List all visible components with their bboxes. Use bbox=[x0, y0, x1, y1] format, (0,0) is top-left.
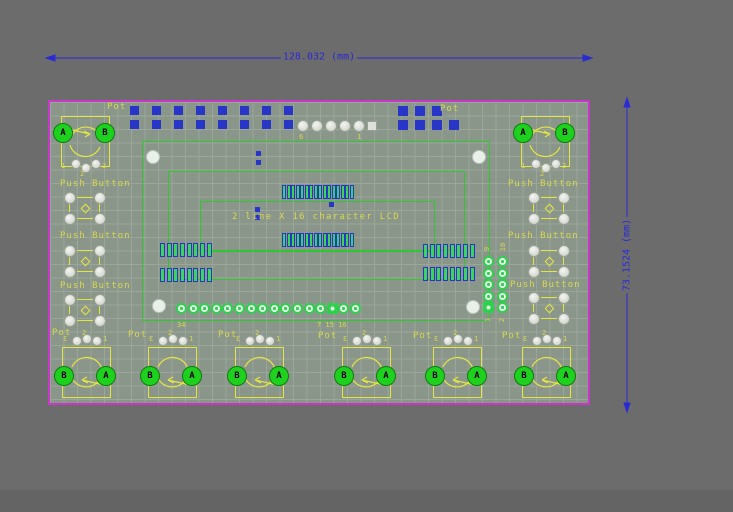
button-pad[interactable] bbox=[94, 245, 106, 257]
pad[interactable] bbox=[470, 267, 475, 281]
silk-line bbox=[69, 306, 70, 314]
pot-pin[interactable] bbox=[158, 336, 168, 346]
silk-line bbox=[541, 297, 557, 298]
pin-number: 2 bbox=[82, 329, 86, 337]
button-pad[interactable] bbox=[94, 192, 106, 204]
silk-line bbox=[77, 299, 93, 300]
via[interactable] bbox=[256, 151, 261, 156]
button-pad[interactable] bbox=[528, 313, 540, 325]
header-pin[interactable] bbox=[211, 303, 222, 314]
push-button-label: Push Button bbox=[508, 179, 579, 189]
button-pad[interactable] bbox=[94, 294, 106, 306]
pot-pad-b[interactable]: B bbox=[227, 366, 247, 386]
mounting-hole[interactable] bbox=[146, 150, 160, 164]
header-pin[interactable] bbox=[280, 303, 291, 314]
header-pin[interactable] bbox=[222, 303, 233, 314]
push-button-label: Push Button bbox=[60, 179, 131, 189]
header-pin[interactable] bbox=[350, 303, 361, 314]
via[interactable] bbox=[329, 202, 334, 207]
pad[interactable] bbox=[207, 268, 212, 282]
smd-pad[interactable] bbox=[152, 120, 161, 129]
pot-label: Pot bbox=[52, 328, 71, 338]
pin-number: 3 bbox=[149, 335, 153, 343]
lcd-pad[interactable] bbox=[287, 233, 291, 247]
pot-pad-b[interactable]: B bbox=[54, 366, 74, 386]
button-pad[interactable] bbox=[64, 192, 76, 204]
lcd-pad[interactable] bbox=[305, 185, 309, 199]
button-pad[interactable] bbox=[94, 213, 106, 225]
pot-pad-a[interactable]: A bbox=[53, 123, 73, 143]
pot-component[interactable]: B A 3 2 1 bbox=[148, 347, 197, 398]
pin-number: 1 bbox=[61, 162, 65, 170]
pot-pin[interactable] bbox=[265, 336, 275, 346]
header-pin[interactable] bbox=[497, 279, 508, 290]
pad-group-left-row1[interactable] bbox=[160, 243, 212, 257]
pot-component[interactable]: B A 3 2 1 bbox=[342, 347, 391, 398]
lcd-pad[interactable] bbox=[282, 233, 286, 247]
lcd-pad[interactable] bbox=[296, 233, 300, 247]
dim-horizontal: 128.032 (mm) bbox=[44, 50, 594, 64]
lcd-pad[interactable] bbox=[300, 185, 304, 199]
pad[interactable] bbox=[423, 244, 428, 258]
smd-pad[interactable] bbox=[218, 120, 227, 129]
pad[interactable] bbox=[200, 243, 205, 257]
pot-pin[interactable] bbox=[178, 336, 188, 346]
push-button-component[interactable] bbox=[64, 245, 106, 276]
pot-pin[interactable] bbox=[552, 336, 562, 346]
smd-pad[interactable] bbox=[415, 106, 425, 116]
mounting-hole[interactable] bbox=[466, 300, 480, 314]
silk-line bbox=[77, 218, 93, 219]
button-pad[interactable] bbox=[94, 266, 106, 278]
silk-line bbox=[99, 306, 100, 314]
lcd-pad[interactable] bbox=[341, 185, 345, 199]
smd-pad[interactable] bbox=[284, 106, 293, 115]
lcd-pad[interactable] bbox=[332, 185, 336, 199]
pot-pin[interactable] bbox=[72, 336, 82, 346]
lcd-pad[interactable] bbox=[309, 233, 313, 247]
pin-number: 2 bbox=[498, 318, 506, 322]
lcd-pad[interactable] bbox=[314, 233, 318, 247]
lcd-pad[interactable] bbox=[327, 233, 331, 247]
lcd-pad[interactable] bbox=[318, 233, 322, 247]
pad-letter: A bbox=[189, 371, 194, 381]
silk-line bbox=[541, 271, 557, 272]
pot-label: Pot bbox=[440, 104, 459, 114]
pin-number: 2 bbox=[453, 329, 457, 337]
pin-number: 3 bbox=[562, 162, 566, 170]
pad[interactable] bbox=[187, 243, 192, 257]
header-pin[interactable] bbox=[339, 120, 351, 132]
trace-bus-line bbox=[168, 250, 463, 251]
header-pin[interactable] bbox=[176, 303, 187, 314]
header-pin[interactable] bbox=[497, 302, 508, 313]
pin-number: 2 bbox=[542, 329, 546, 337]
silk-line bbox=[77, 197, 93, 198]
pin-number: 2 bbox=[80, 170, 84, 178]
pot-label: Pot bbox=[502, 331, 521, 341]
lcd-pad[interactable] bbox=[291, 233, 295, 247]
lcd-pad[interactable] bbox=[336, 233, 340, 247]
header-pin[interactable] bbox=[483, 256, 494, 267]
pin-number: 3 bbox=[343, 335, 347, 343]
lcd-pad[interactable] bbox=[336, 185, 340, 199]
pad[interactable] bbox=[463, 267, 468, 281]
pad-letter: A bbox=[474, 371, 479, 381]
smd-pad[interactable] bbox=[174, 106, 183, 115]
pin-number: 34 bbox=[177, 321, 185, 329]
smd-pad[interactable] bbox=[240, 120, 249, 129]
button-pad[interactable] bbox=[528, 192, 540, 204]
silk-line bbox=[99, 204, 100, 212]
smd-pad[interactable] bbox=[130, 106, 139, 115]
pad-letter: A bbox=[276, 371, 281, 381]
smd-pad[interactable] bbox=[449, 120, 459, 130]
smd-pad[interactable] bbox=[240, 106, 249, 115]
header-pin-square[interactable] bbox=[327, 303, 338, 314]
smd-pad[interactable] bbox=[130, 120, 139, 129]
silk-line bbox=[77, 271, 93, 272]
mounting-hole[interactable] bbox=[472, 150, 486, 164]
mounting-hole[interactable] bbox=[152, 299, 166, 313]
pot-pad-a[interactable]: A bbox=[182, 366, 202, 386]
pad[interactable] bbox=[207, 243, 212, 257]
lcd-pad[interactable] bbox=[282, 185, 286, 199]
lcd-pad[interactable] bbox=[287, 185, 291, 199]
pin-number: 9 bbox=[483, 247, 491, 251]
dim-horizontal-label: 128.032 (mm) bbox=[281, 52, 357, 63]
header-pin[interactable] bbox=[199, 303, 210, 314]
header-pin[interactable] bbox=[311, 120, 323, 132]
lcd-pad-row-top[interactable] bbox=[282, 185, 354, 199]
silk-line bbox=[541, 197, 557, 198]
pot-label: Pot bbox=[128, 330, 147, 340]
push-button-component[interactable] bbox=[528, 292, 570, 323]
pad-group-right-row2[interactable] bbox=[423, 267, 475, 281]
button-pad[interactable] bbox=[528, 213, 540, 225]
pin-number: 1 bbox=[521, 162, 525, 170]
pot-pin[interactable] bbox=[443, 336, 453, 346]
pad[interactable] bbox=[430, 267, 435, 281]
smd-pad-group-left[interactable] bbox=[130, 106, 293, 129]
header-pin[interactable] bbox=[353, 120, 365, 132]
pad[interactable] bbox=[436, 244, 441, 258]
pot-pad-a[interactable]: A bbox=[376, 366, 396, 386]
pot-pin[interactable] bbox=[372, 336, 382, 346]
push-button-component[interactable] bbox=[64, 192, 106, 223]
pad[interactable] bbox=[456, 244, 461, 258]
push-button-component[interactable] bbox=[64, 294, 106, 325]
pot-component[interactable]: B A 3 2 1 bbox=[433, 347, 482, 398]
pad[interactable] bbox=[470, 244, 475, 258]
pad[interactable] bbox=[180, 268, 185, 282]
pad[interactable] bbox=[443, 244, 448, 258]
pin-number: 1 bbox=[276, 335, 280, 343]
header-pin-1-square[interactable] bbox=[483, 302, 494, 313]
header-pin[interactable] bbox=[257, 303, 268, 314]
pad-letter: A bbox=[520, 128, 525, 138]
silk-line bbox=[563, 204, 564, 212]
header-pin[interactable] bbox=[483, 291, 494, 302]
smd-pad-pair[interactable] bbox=[130, 106, 139, 129]
pot-pin[interactable] bbox=[71, 159, 81, 169]
pad[interactable] bbox=[450, 244, 455, 258]
button-pad[interactable] bbox=[558, 266, 570, 278]
header-pin[interactable] bbox=[297, 120, 309, 132]
push-button-component[interactable] bbox=[528, 245, 570, 276]
silk-line bbox=[77, 320, 93, 321]
pot-label: Pot bbox=[218, 330, 237, 340]
button-pad[interactable] bbox=[558, 213, 570, 225]
pad[interactable] bbox=[180, 243, 185, 257]
header-pin[interactable] bbox=[315, 303, 326, 314]
pad[interactable] bbox=[423, 267, 428, 281]
pot-pin[interactable] bbox=[91, 159, 101, 169]
pin-number: 2 bbox=[255, 329, 259, 337]
pot-pad-b[interactable]: B bbox=[334, 366, 354, 386]
pot-label: Pot bbox=[318, 331, 337, 341]
pot-pad-b[interactable]: B bbox=[95, 123, 115, 143]
header-pin[interactable] bbox=[483, 268, 494, 279]
pot-pin[interactable] bbox=[245, 336, 255, 346]
smd-pad[interactable] bbox=[218, 106, 227, 115]
pin-header-16[interactable] bbox=[176, 303, 361, 314]
pot-pin[interactable] bbox=[551, 159, 561, 169]
smd-pad[interactable] bbox=[284, 120, 293, 129]
button-pad[interactable] bbox=[64, 315, 76, 327]
lcd-pad[interactable] bbox=[305, 233, 309, 247]
pad-letter: A bbox=[383, 371, 388, 381]
pad[interactable] bbox=[193, 268, 198, 282]
push-button-label: Push Button bbox=[508, 231, 579, 241]
pad-letter: B bbox=[432, 371, 437, 381]
smd-pad[interactable] bbox=[174, 120, 183, 129]
silk-diamond bbox=[545, 204, 555, 214]
lcd-pad[interactable] bbox=[341, 233, 345, 247]
button-pad[interactable] bbox=[558, 192, 570, 204]
lcd-pad-row-bottom[interactable] bbox=[282, 233, 354, 247]
pad[interactable] bbox=[193, 243, 198, 257]
pad-letter: B bbox=[102, 128, 107, 138]
lcd-pad[interactable] bbox=[291, 185, 295, 199]
pad[interactable] bbox=[200, 268, 205, 282]
pot-pad-a[interactable]: A bbox=[556, 366, 576, 386]
button-pad[interactable] bbox=[64, 266, 76, 278]
pad[interactable] bbox=[167, 268, 172, 282]
pin-number: 3 bbox=[434, 335, 438, 343]
pot-component[interactable]: B A 3 2 1 bbox=[522, 347, 571, 398]
silk-line bbox=[541, 318, 557, 319]
pot-pad-a[interactable]: A bbox=[467, 366, 487, 386]
silk-diamond bbox=[545, 257, 555, 267]
pad-group-left-row2[interactable] bbox=[160, 268, 212, 282]
pin-number: 1 bbox=[474, 335, 478, 343]
button-pad[interactable] bbox=[528, 245, 540, 257]
header-pin[interactable] bbox=[497, 256, 508, 267]
button-pad[interactable] bbox=[558, 292, 570, 304]
smd-pad-pair[interactable] bbox=[284, 106, 293, 129]
pad[interactable] bbox=[173, 268, 178, 282]
smd-pad[interactable] bbox=[152, 106, 161, 115]
button-pad[interactable] bbox=[558, 313, 570, 325]
pin-number: 1 bbox=[563, 335, 567, 343]
pot-pad-a[interactable]: A bbox=[96, 366, 116, 386]
pad[interactable] bbox=[430, 244, 435, 258]
pad-letter: A bbox=[60, 128, 65, 138]
lcd-pad[interactable] bbox=[345, 185, 349, 199]
pad-letter: B bbox=[521, 371, 526, 381]
lcd-silkscreen-text: 2 line X 16 character LCD bbox=[232, 212, 400, 222]
pin-number: 1 bbox=[357, 133, 361, 141]
header-pin[interactable] bbox=[292, 303, 303, 314]
pin-number: 2 bbox=[540, 170, 544, 178]
smd-pad[interactable] bbox=[196, 120, 205, 129]
smd-pad-pair[interactable] bbox=[218, 106, 227, 129]
lcd-pad[interactable] bbox=[350, 233, 354, 247]
button-pad[interactable] bbox=[94, 315, 106, 327]
silk-line bbox=[99, 257, 100, 265]
pot-component[interactable]: A B 1 2 3 bbox=[521, 116, 570, 167]
pad[interactable] bbox=[450, 267, 455, 281]
pad-letter: B bbox=[562, 128, 567, 138]
silk-line bbox=[563, 257, 564, 265]
pcb-editor-canvas[interactable]: 128.032 (mm) 73.1524 (mm) bbox=[0, 0, 733, 512]
silk-diamond bbox=[81, 204, 91, 214]
smd-pad[interactable] bbox=[398, 106, 408, 116]
header-pin[interactable] bbox=[497, 291, 508, 302]
header-pin[interactable] bbox=[483, 279, 494, 290]
pad[interactable] bbox=[167, 243, 172, 257]
pad-letter: B bbox=[234, 371, 239, 381]
header-pin[interactable] bbox=[325, 120, 337, 132]
lcd-pad[interactable] bbox=[314, 185, 318, 199]
silk-line bbox=[563, 304, 564, 312]
pad[interactable] bbox=[456, 267, 461, 281]
pot-pin[interactable] bbox=[92, 336, 102, 346]
silk-line bbox=[77, 250, 93, 251]
pin-number: 2 bbox=[168, 329, 172, 337]
header-pin[interactable] bbox=[269, 303, 280, 314]
dim-vertical: 73.1524 (mm) bbox=[620, 96, 634, 414]
pad[interactable] bbox=[436, 267, 441, 281]
smd-pad-pair[interactable] bbox=[196, 106, 205, 129]
silk-line bbox=[541, 218, 557, 219]
pot-pad-b[interactable]: B bbox=[555, 123, 575, 143]
lcd-pad[interactable] bbox=[309, 185, 313, 199]
pot-component[interactable]: A B 1 2 3 bbox=[61, 116, 110, 167]
pot-component[interactable]: B A 3 2 1 bbox=[62, 347, 111, 398]
pad[interactable] bbox=[160, 268, 165, 282]
header-pin[interactable] bbox=[304, 303, 315, 314]
pot-pad-b[interactable]: B bbox=[140, 366, 160, 386]
header-pin[interactable] bbox=[234, 303, 245, 314]
silk-line bbox=[533, 204, 534, 212]
pot-label: Pot bbox=[413, 331, 432, 341]
lcd-pad[interactable] bbox=[345, 233, 349, 247]
header-pin[interactable] bbox=[246, 303, 257, 314]
pad[interactable] bbox=[187, 268, 192, 282]
smd-pad[interactable] bbox=[262, 120, 271, 129]
silk-line bbox=[533, 304, 534, 312]
push-button-label: Push Button bbox=[510, 280, 581, 290]
pot-pad-a[interactable]: A bbox=[513, 123, 533, 143]
silk-diamond bbox=[81, 306, 91, 316]
pin-header-2x5[interactable] bbox=[483, 256, 508, 313]
smd-pad-pair[interactable] bbox=[398, 106, 408, 130]
pad-letter: B bbox=[147, 371, 152, 381]
button-pad[interactable] bbox=[558, 245, 570, 257]
lcd-pad[interactable] bbox=[323, 185, 327, 199]
pot-pin[interactable] bbox=[463, 336, 473, 346]
lcd-pad[interactable] bbox=[332, 233, 336, 247]
header-pin[interactable] bbox=[497, 268, 508, 279]
silk-line bbox=[533, 257, 534, 265]
button-pad[interactable] bbox=[64, 294, 76, 306]
smd-pad-pair[interactable] bbox=[152, 106, 161, 129]
silk-line bbox=[541, 250, 557, 251]
smd-pad-pair[interactable] bbox=[174, 106, 183, 129]
pad-letter: B bbox=[341, 371, 346, 381]
lcd-pad[interactable] bbox=[327, 185, 331, 199]
button-pad[interactable] bbox=[64, 213, 76, 225]
via[interactable] bbox=[256, 160, 261, 165]
pin-number: 1 bbox=[383, 335, 387, 343]
button-pad[interactable] bbox=[528, 292, 540, 304]
button-pad[interactable] bbox=[64, 245, 76, 257]
smd-pad[interactable] bbox=[432, 120, 442, 130]
window-bottom-strip bbox=[0, 490, 733, 512]
pad-letter: A bbox=[563, 371, 568, 381]
pot-pad-b[interactable]: B bbox=[425, 366, 445, 386]
pad[interactable] bbox=[443, 267, 448, 281]
lcd-pad[interactable] bbox=[318, 185, 322, 199]
smd-pad[interactable] bbox=[415, 120, 425, 130]
pot-component[interactable]: B A 3 2 1 bbox=[235, 347, 284, 398]
smd-pad[interactable] bbox=[262, 106, 271, 115]
push-button-component[interactable] bbox=[528, 192, 570, 223]
smd-pad-pair[interactable] bbox=[262, 106, 271, 129]
pin-number: 1 bbox=[484, 318, 492, 322]
smd-pad[interactable] bbox=[398, 120, 408, 130]
pot-pad-b[interactable]: B bbox=[514, 366, 534, 386]
push-button-label: Push Button bbox=[60, 281, 131, 291]
pot-pin[interactable] bbox=[532, 336, 542, 346]
lcd-pad[interactable] bbox=[350, 185, 354, 199]
pot-label: Pot bbox=[107, 102, 126, 112]
header-pin[interactable] bbox=[188, 303, 199, 314]
lcd-pad[interactable] bbox=[296, 185, 300, 199]
pin-number: 1 bbox=[103, 335, 107, 343]
lcd-pad[interactable] bbox=[323, 233, 327, 247]
silk-line bbox=[69, 204, 70, 212]
smd-pad[interactable] bbox=[196, 106, 205, 115]
pot-pin[interactable] bbox=[531, 159, 541, 169]
header-pin-1-square[interactable] bbox=[367, 121, 377, 131]
pad[interactable] bbox=[160, 243, 165, 257]
pot-pin[interactable] bbox=[352, 336, 362, 346]
lcd-pad[interactable] bbox=[300, 233, 304, 247]
header-pin[interactable] bbox=[338, 303, 349, 314]
pad[interactable] bbox=[463, 244, 468, 258]
button-pad[interactable] bbox=[528, 266, 540, 278]
pin-header-6[interactable] bbox=[297, 120, 377, 132]
pin-number: 2 bbox=[362, 329, 366, 337]
smd-pad-pair[interactable] bbox=[415, 106, 425, 130]
pot-pad-a[interactable]: A bbox=[269, 366, 289, 386]
pad-group-right-row1[interactable] bbox=[423, 244, 475, 258]
smd-pad-pair[interactable] bbox=[240, 106, 249, 129]
pad[interactable] bbox=[173, 243, 178, 257]
